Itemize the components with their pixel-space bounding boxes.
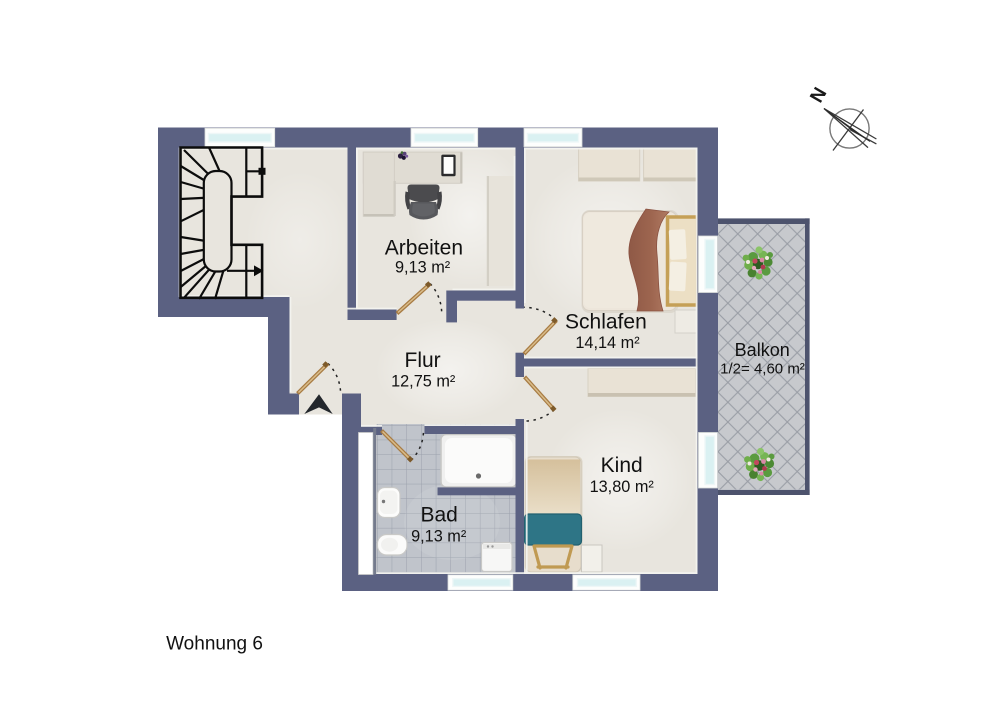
svg-text:Bad: Bad bbox=[421, 503, 458, 526]
svg-text:Arbeiten: Arbeiten bbox=[385, 236, 463, 259]
svg-text:13,80 m²: 13,80 m² bbox=[590, 478, 655, 496]
svg-text:1/2= 4,60 m²: 1/2= 4,60 m² bbox=[720, 360, 805, 377]
svg-text:12,75 m²: 12,75 m² bbox=[391, 372, 456, 390]
svg-text:N: N bbox=[806, 84, 831, 106]
svg-text:9,13 m²: 9,13 m² bbox=[395, 259, 451, 277]
svg-text:Flur: Flur bbox=[405, 349, 441, 372]
svg-text:Kind: Kind bbox=[601, 454, 643, 477]
svg-text:Balkon: Balkon bbox=[735, 340, 790, 360]
svg-text:14,14 m²: 14,14 m² bbox=[575, 334, 640, 352]
svg-text:Wohnung 6: Wohnung 6 bbox=[166, 634, 263, 655]
svg-text:Schlafen: Schlafen bbox=[565, 310, 647, 333]
svg-text:9,13 m²: 9,13 m² bbox=[411, 528, 467, 546]
